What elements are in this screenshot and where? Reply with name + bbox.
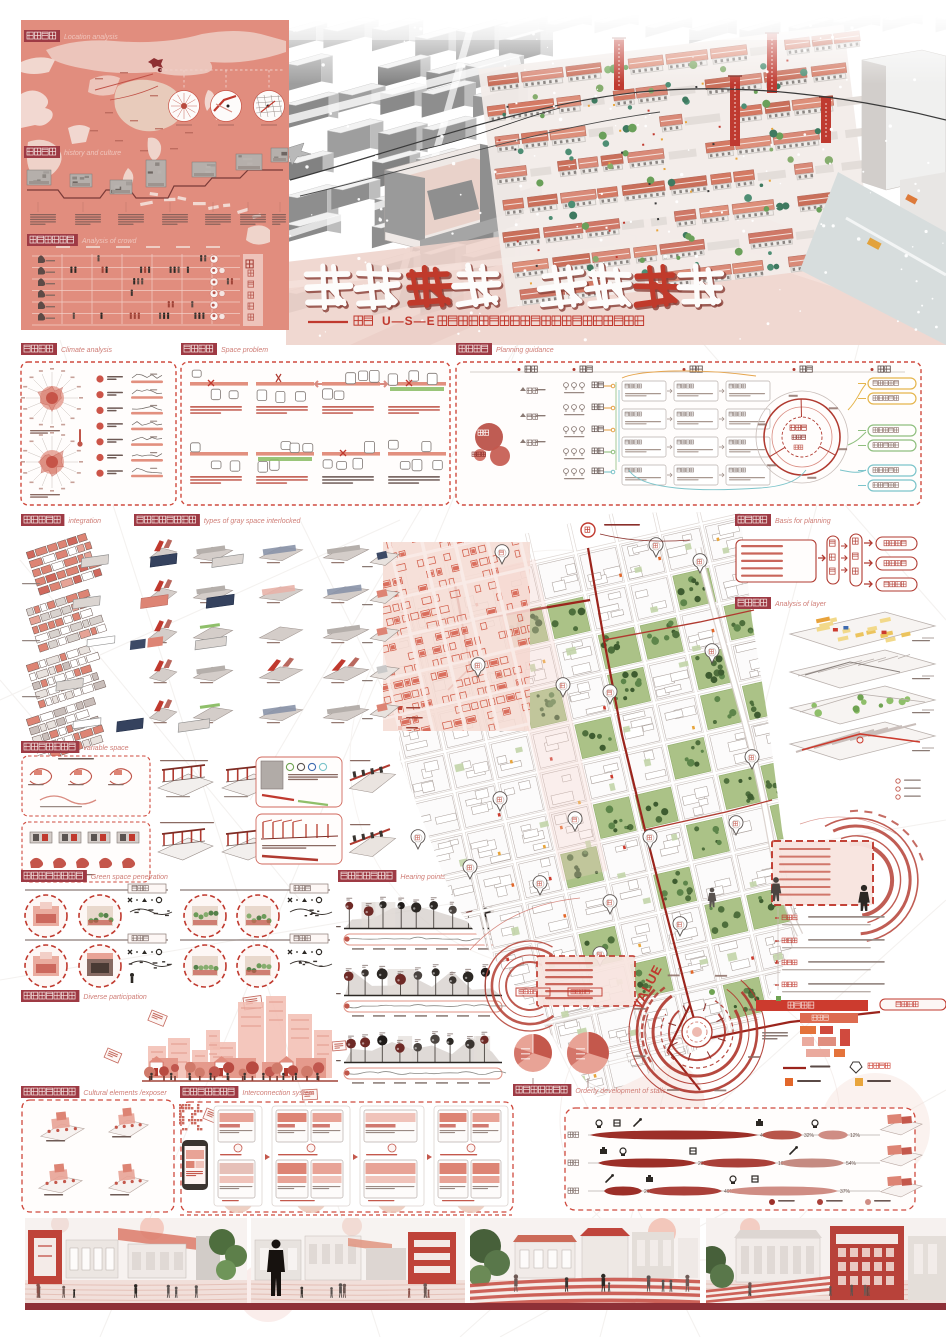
svg-text:Orderly development of stalls: Orderly development of stalls [575, 1088, 666, 1095]
svg-text:32%: 32% [804, 1133, 815, 1139]
svg-text:Location analysis: Location analysis [64, 34, 118, 41]
svg-text:Analysis of crowd: Analysis of crowd [81, 238, 138, 245]
svg-text:variable space: variable space [83, 745, 128, 752]
svg-text:Hearing points: Hearing points [400, 874, 446, 881]
svg-text:Basis for planning: Basis for planning [775, 518, 831, 525]
svg-text:Diverse participation: Diverse participation [83, 994, 147, 1001]
svg-text:Climate analysis: Climate analysis [61, 347, 112, 354]
svg-text:Interconnection system: Interconnection system [242, 1090, 314, 1097]
svg-text:12%: 12% [850, 1133, 861, 1139]
svg-text:types of gray space interlocke: types of gray space interlocked [204, 518, 302, 525]
svg-text:Space problem: Space problem [221, 347, 268, 354]
svg-text:Green space penetration: Green space penetration [91, 874, 168, 881]
svg-text:U—S—E: U—S—E [382, 314, 436, 328]
svg-text:integration: integration [68, 518, 101, 525]
svg-text:history and culture: history and culture [64, 150, 121, 157]
svg-text:Cultural elements /exposer: Cultural elements /exposer [83, 1090, 167, 1097]
svg-text:54%: 54% [846, 1161, 857, 1167]
svg-text:Analysis of layer: Analysis of layer [774, 601, 827, 608]
svg-text:37%: 37% [840, 1189, 851, 1195]
svg-text:Planning guidance: Planning guidance [496, 347, 554, 354]
